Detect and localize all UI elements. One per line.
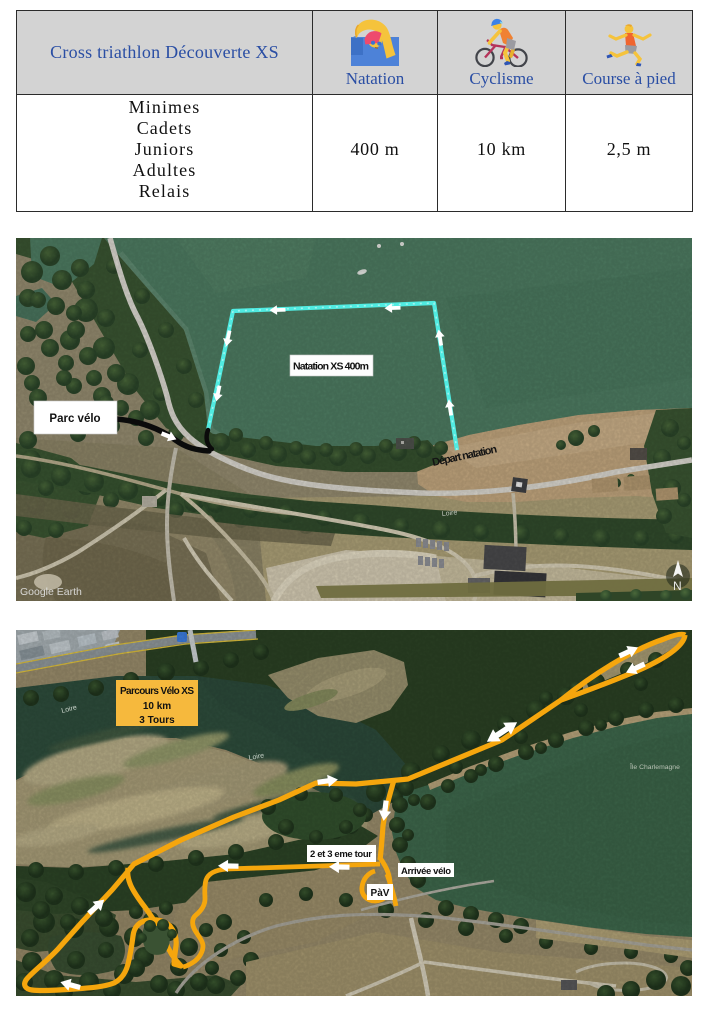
svg-text:10 km: 10 km	[143, 701, 171, 712]
svg-text:Parcours Vélo XS: Parcours Vélo XS	[120, 686, 194, 697]
svg-text:Île Charlemagne: Île Charlemagne	[629, 762, 680, 771]
svg-text:Parc vélo: Parc vélo	[49, 413, 100, 425]
svg-text:2 et 3 eme tour: 2 et 3 eme tour	[310, 849, 372, 860]
svg-text:PàV: PàV	[371, 888, 390, 899]
svg-text:Natation XS 400m: Natation XS 400m	[293, 361, 369, 373]
svg-text:Arrivée vélo: Arrivée vélo	[401, 866, 451, 877]
svg-text:3 Tours: 3 Tours	[139, 715, 175, 726]
svg-text:Google Earth: Google Earth	[20, 586, 82, 598]
svg-text:N: N	[673, 579, 682, 593]
